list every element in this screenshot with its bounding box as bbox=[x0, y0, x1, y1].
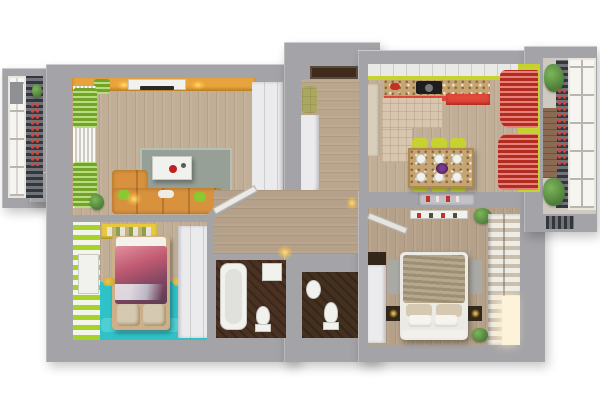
balcony-left bbox=[8, 76, 43, 198]
bedside-rug bbox=[470, 260, 482, 294]
plant-icon bbox=[472, 328, 488, 342]
wall-niche-shelf bbox=[418, 193, 474, 205]
wash-basin bbox=[306, 280, 321, 299]
dining-table bbox=[408, 148, 474, 188]
upholstered-bench bbox=[302, 86, 317, 113]
print-duvet bbox=[115, 246, 167, 304]
pillow bbox=[117, 304, 140, 326]
small-dish bbox=[181, 163, 186, 168]
toilet-icon bbox=[321, 300, 341, 332]
bedside-rug bbox=[388, 260, 400, 294]
entry-door bbox=[310, 66, 358, 79]
climbing-flowers bbox=[30, 102, 39, 166]
kids-bed bbox=[112, 236, 170, 330]
tile-mat bbox=[382, 98, 442, 128]
bathtub bbox=[220, 263, 247, 330]
ceiling-lamp-icon bbox=[277, 245, 293, 260]
plate bbox=[416, 154, 426, 164]
kids-wardrobe bbox=[178, 226, 207, 338]
niche-items bbox=[426, 196, 466, 202]
nightstand bbox=[386, 306, 400, 321]
bedroom-wardrobe bbox=[368, 265, 386, 343]
toilet-tank bbox=[255, 324, 271, 332]
pillow-white bbox=[434, 315, 458, 327]
white-blanket-fold bbox=[115, 284, 167, 300]
foot-bench bbox=[402, 330, 466, 338]
red-utensil bbox=[390, 83, 400, 90]
coffee-table bbox=[152, 156, 192, 180]
radiator-icon bbox=[78, 254, 99, 294]
window-light bbox=[502, 296, 520, 345]
plant-icon bbox=[32, 84, 42, 98]
washing-machine bbox=[262, 263, 282, 281]
curved-closet bbox=[301, 115, 319, 201]
window-icon bbox=[568, 58, 596, 210]
tv-icon bbox=[140, 86, 174, 90]
coral-cabinet-peninsula bbox=[446, 94, 490, 105]
bathroom bbox=[216, 260, 286, 338]
striped-duvet bbox=[403, 255, 465, 303]
pillow-white bbox=[408, 315, 432, 327]
plant-icon bbox=[543, 178, 565, 206]
floor-lamp-icon bbox=[126, 192, 142, 206]
double-bed bbox=[400, 252, 468, 340]
wc bbox=[302, 272, 358, 338]
books bbox=[107, 227, 151, 236]
plate bbox=[452, 154, 462, 164]
upper-cabinets bbox=[368, 64, 518, 76]
white-throw bbox=[158, 190, 174, 198]
red-curtain bbox=[498, 134, 538, 190]
plate bbox=[452, 172, 462, 182]
toilet-bowl bbox=[324, 302, 338, 323]
floor-plan-render bbox=[0, 0, 600, 400]
plate bbox=[416, 172, 426, 182]
red-curtain bbox=[500, 70, 538, 128]
tall-cabinet bbox=[368, 84, 380, 156]
pillow bbox=[143, 304, 166, 326]
cooktop-icon bbox=[416, 81, 442, 94]
pot-icon bbox=[425, 84, 433, 92]
wardrobe-dark-top bbox=[368, 252, 386, 265]
flower-centerpiece bbox=[436, 163, 448, 174]
kitchen-dining bbox=[368, 64, 540, 192]
bedside-lamp-icon bbox=[471, 309, 480, 318]
toilet-bowl bbox=[256, 306, 270, 325]
shelf-items bbox=[417, 213, 463, 218]
radiator-icon bbox=[546, 216, 574, 229]
wall-light-icon bbox=[190, 80, 206, 90]
green-curtain bbox=[73, 88, 97, 128]
wall-shelf bbox=[410, 210, 468, 219]
brick-wall bbox=[543, 108, 557, 178]
fish-decal-icon bbox=[103, 277, 115, 286]
climbing-flowers bbox=[557, 88, 567, 168]
kids-room bbox=[73, 222, 207, 340]
wall-lamp-icon bbox=[346, 196, 358, 210]
tub-basin bbox=[225, 269, 242, 324]
bedside-lamp-icon bbox=[389, 309, 398, 318]
toilet-tank bbox=[323, 322, 339, 330]
toilet-icon bbox=[253, 306, 273, 332]
red-bowl bbox=[169, 165, 177, 173]
balcony-right bbox=[543, 58, 596, 214]
green-pillow bbox=[194, 192, 206, 202]
plant-icon bbox=[90, 194, 104, 210]
grey-panel bbox=[10, 82, 23, 104]
hall-built-in-wardrobe bbox=[252, 82, 283, 192]
nightstand bbox=[468, 306, 482, 321]
